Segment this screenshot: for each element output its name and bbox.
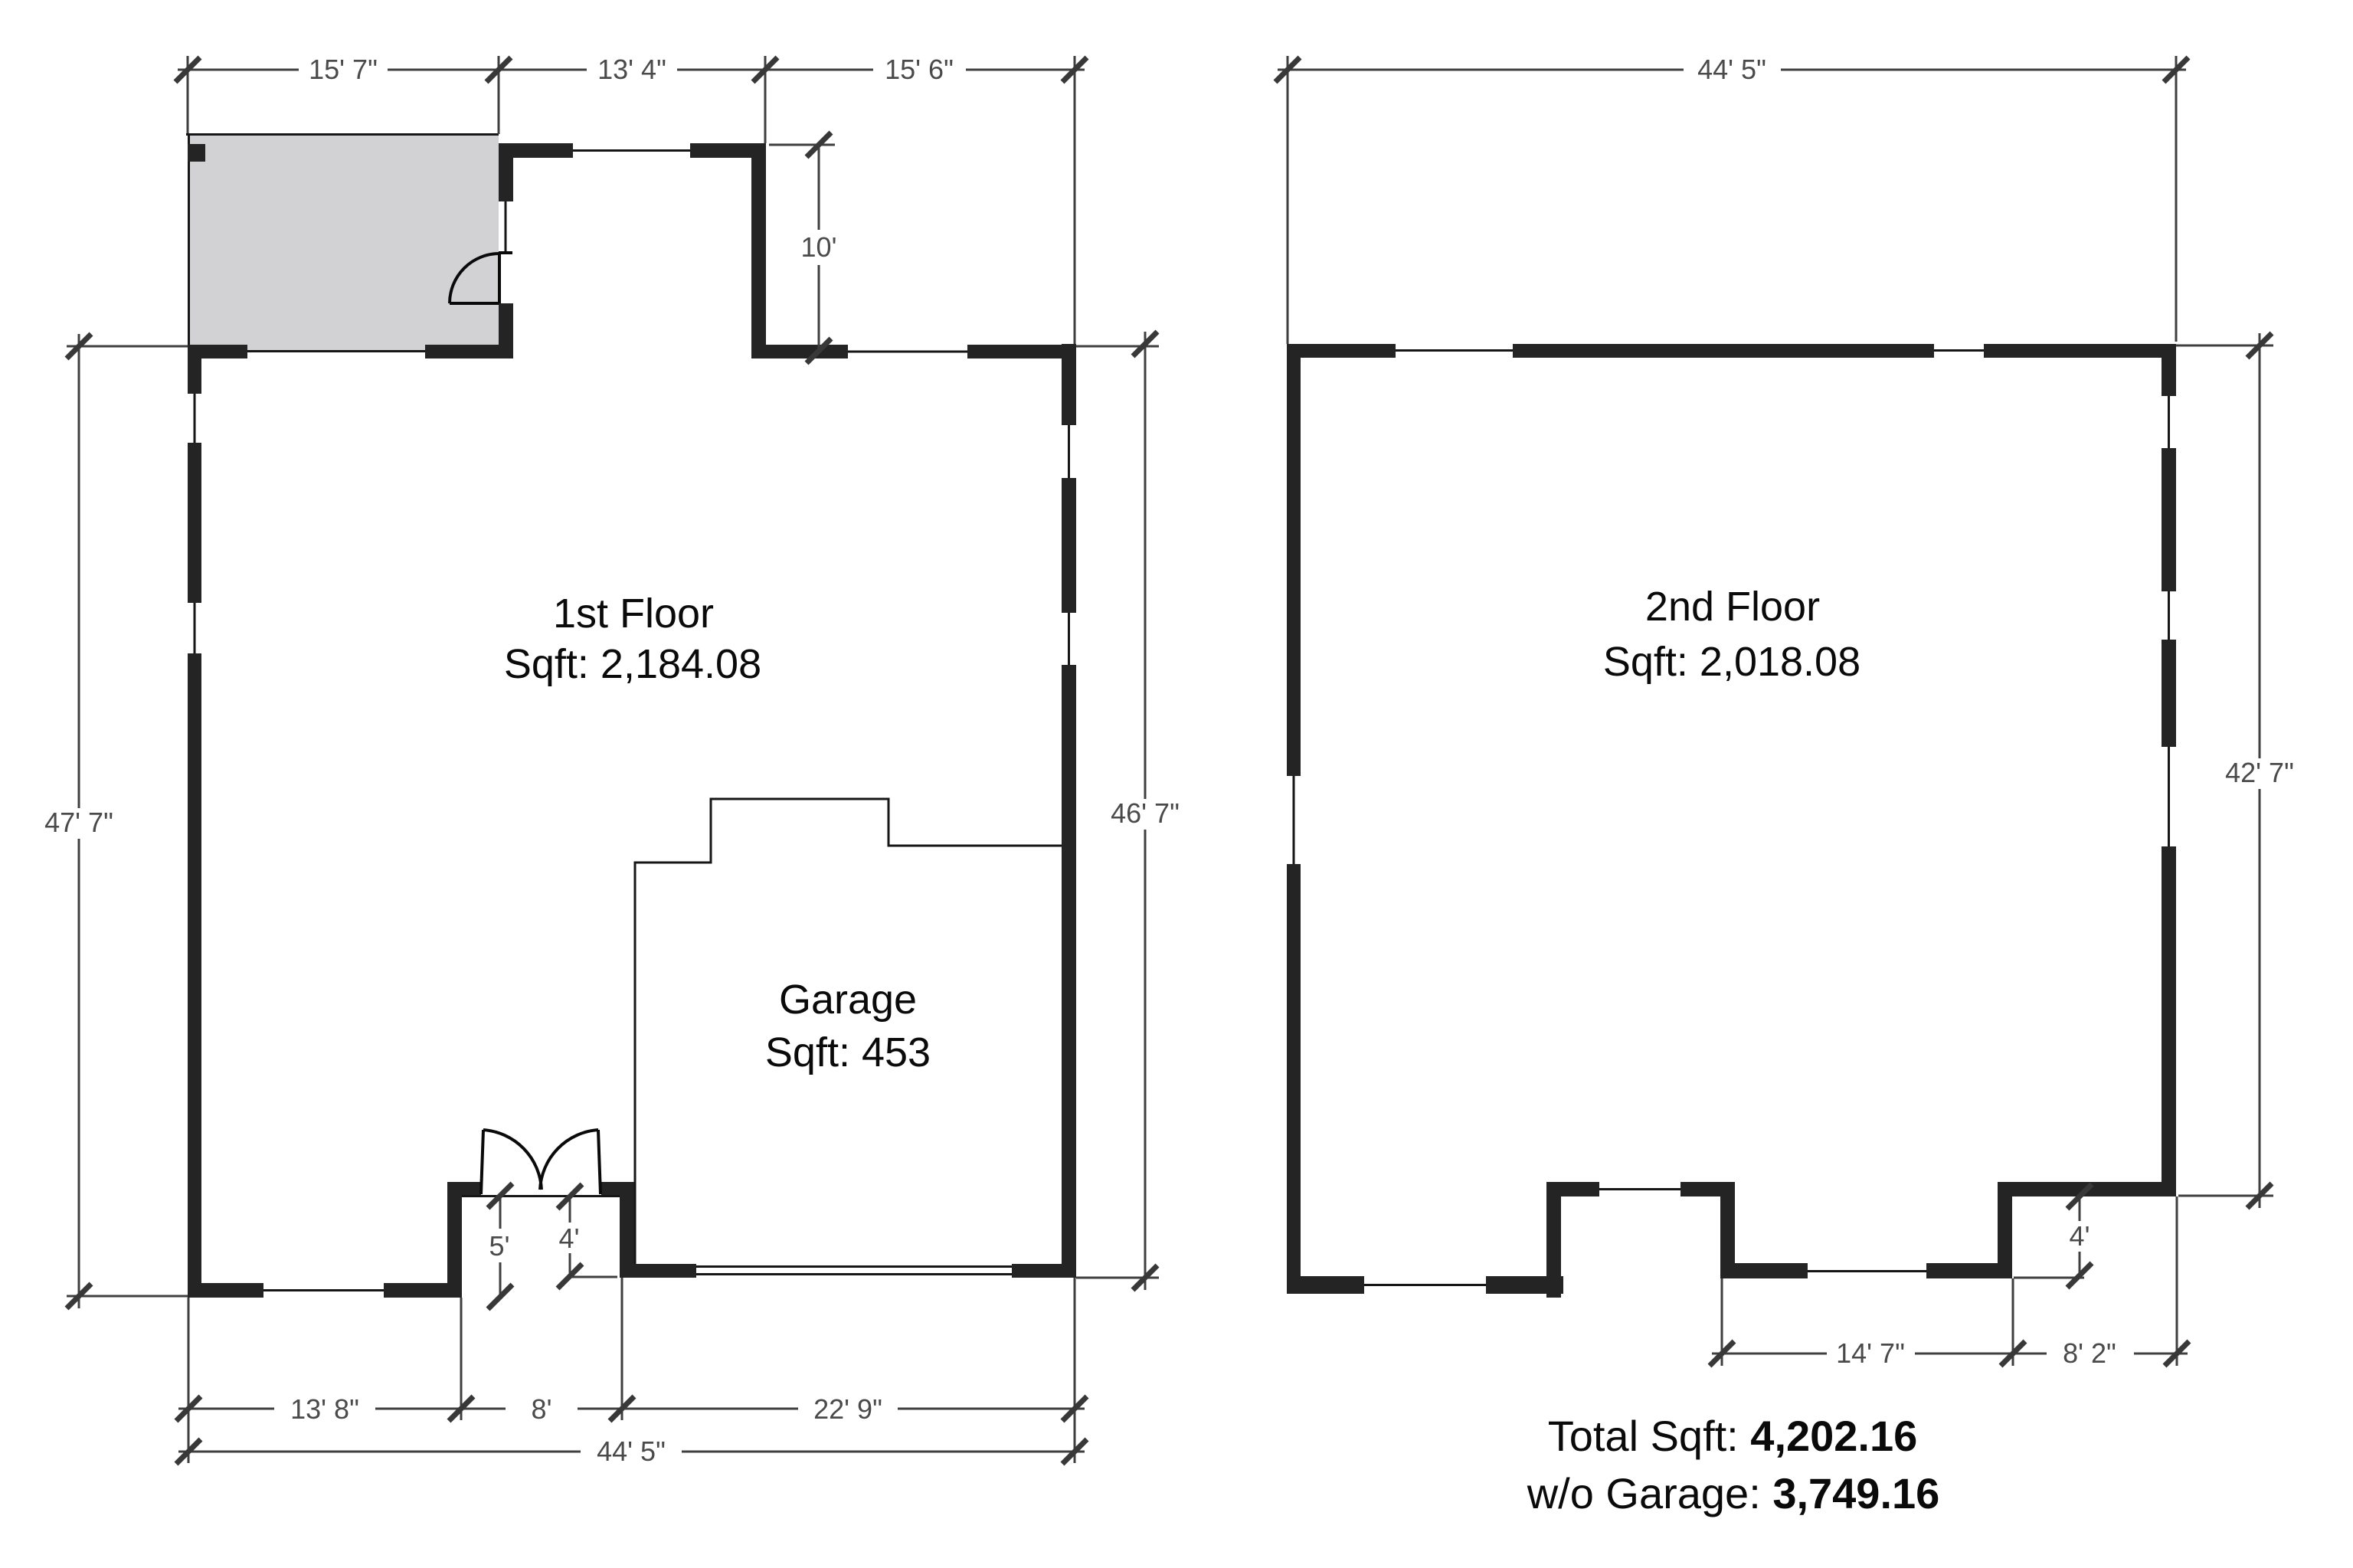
svg-text:42' 7": 42' 7"	[2225, 757, 2294, 788]
svg-text:44' 5": 44' 5"	[597, 1435, 666, 1467]
svg-text:22' 9": 22' 9"	[813, 1393, 882, 1425]
svg-text:Sqft: 2,018.08: Sqft: 2,018.08	[1603, 639, 1860, 685]
svg-text:8': 8'	[532, 1393, 552, 1425]
svg-text:15' 6": 15' 6"	[885, 54, 954, 85]
svg-text:4': 4'	[2070, 1220, 2090, 1252]
svg-text:5': 5'	[489, 1230, 510, 1262]
svg-text:13' 8": 13' 8"	[290, 1393, 359, 1425]
svg-text:14' 7": 14' 7"	[1836, 1337, 1905, 1369]
svg-text:44' 5": 44' 5"	[1697, 54, 1766, 85]
svg-text:47' 7": 47' 7"	[44, 807, 113, 838]
svg-text:4': 4'	[559, 1223, 580, 1254]
svg-text:15' 7": 15' 7"	[309, 54, 378, 85]
svg-text:8' 2": 8' 2"	[2063, 1337, 2116, 1369]
svg-text:1st Floor: 1st Floor	[553, 591, 714, 637]
svg-text:w/o Garage: 3,749.16: w/o Garage: 3,749.16	[1527, 1469, 1940, 1517]
svg-text:Total Sqft: 4,202.16: Total Sqft: 4,202.16	[1548, 1412, 1918, 1460]
svg-text:46' 7": 46' 7"	[1111, 797, 1180, 829]
svg-text:Sqft: 453: Sqft: 453	[765, 1030, 931, 1075]
svg-text:13' 4": 13' 4"	[597, 54, 666, 85]
svg-text:2nd Floor: 2nd Floor	[1645, 584, 1820, 630]
svg-text:Garage: Garage	[779, 977, 917, 1023]
svg-text:10': 10'	[801, 231, 837, 263]
svg-text:Sqft: 2,184.08: Sqft: 2,184.08	[504, 641, 761, 687]
